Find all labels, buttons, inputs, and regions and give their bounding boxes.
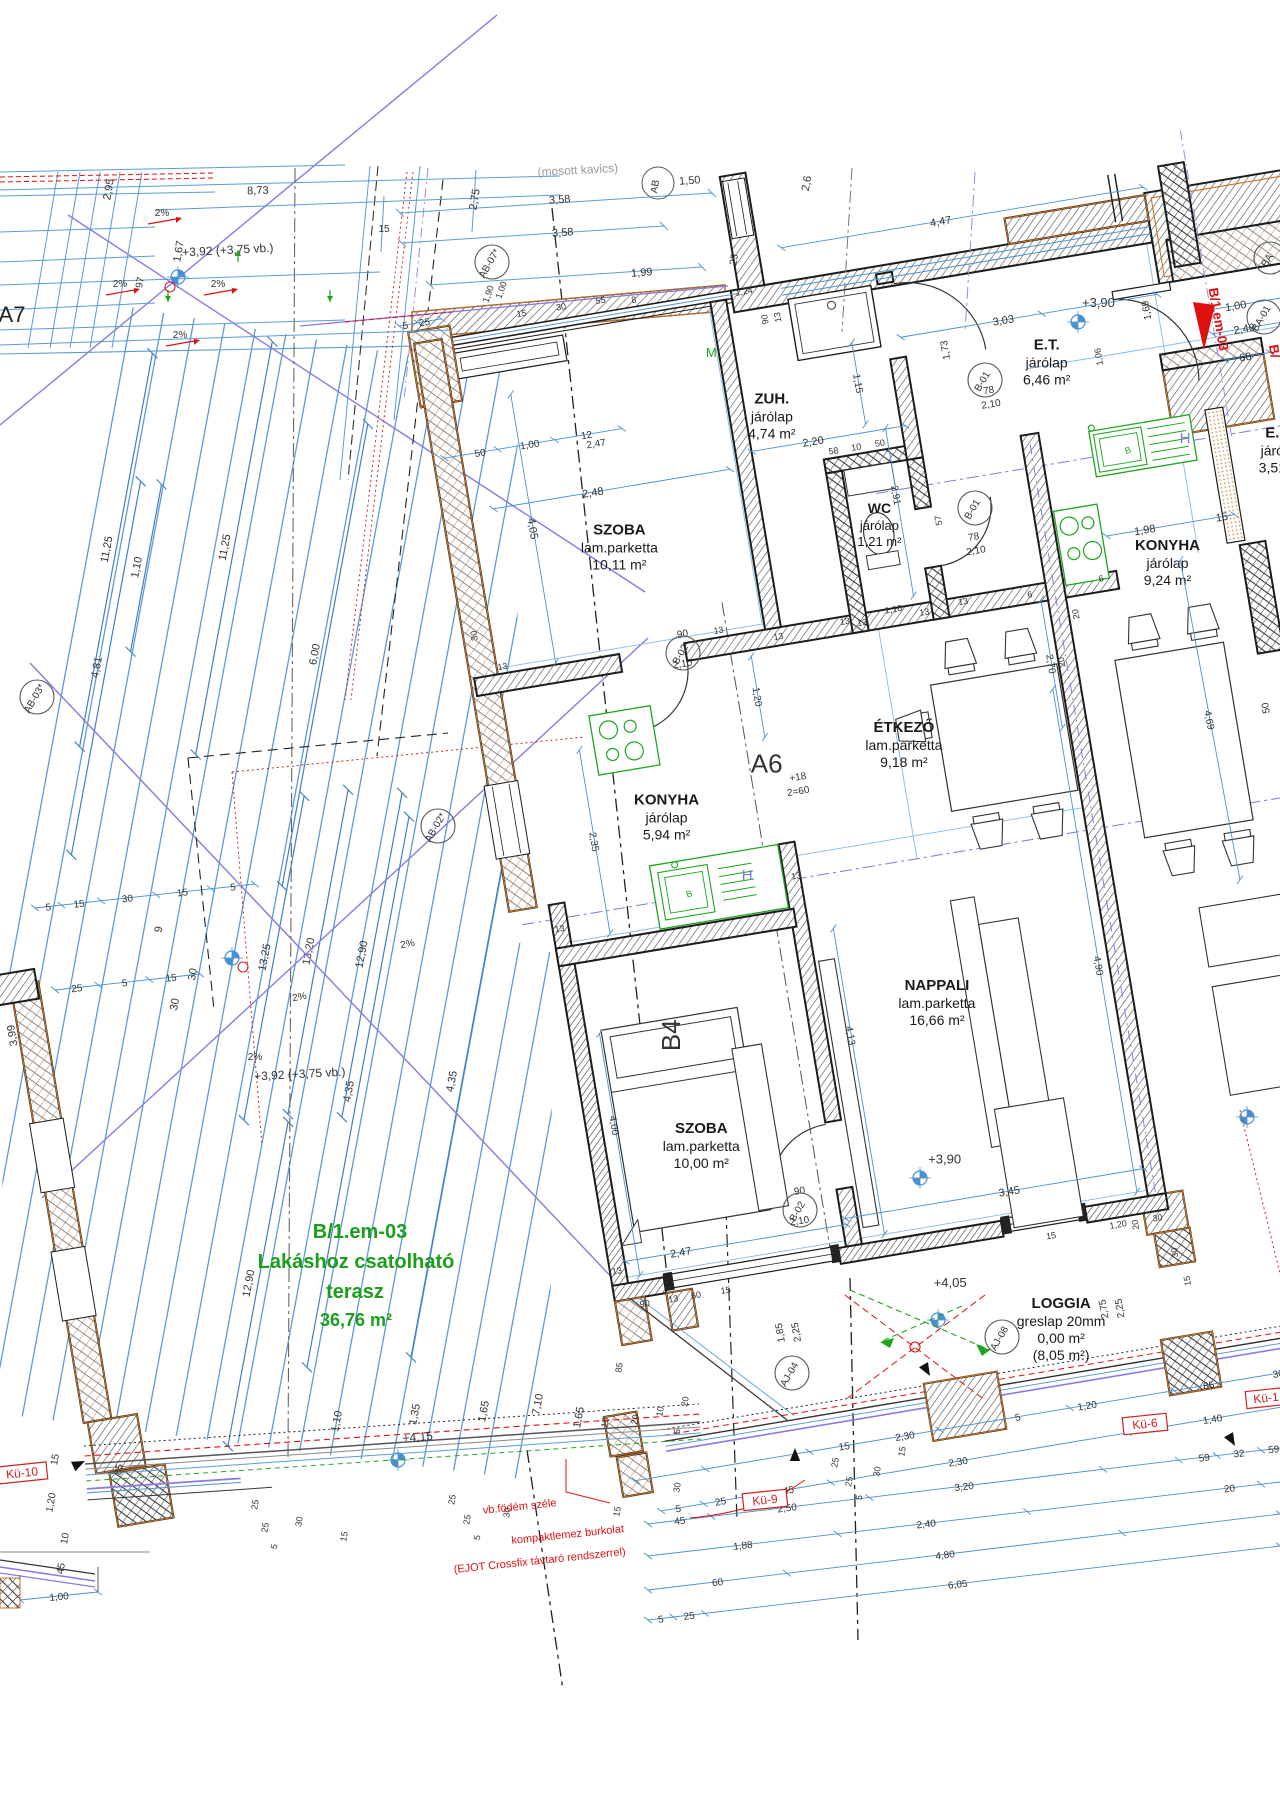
svg-text:H: H: [742, 867, 753, 884]
svg-text:15: 15: [1045, 1230, 1057, 1242]
svg-text:30: 30: [1272, 1368, 1280, 1381]
svg-text:59: 59: [1268, 1444, 1280, 1456]
svg-text:30: 30: [871, 1466, 883, 1478]
svg-text:6,05: 6,05: [948, 1579, 969, 1592]
svg-text:6,46 m²: 6,46 m²: [1023, 371, 1071, 387]
svg-text:60: 60: [690, 1289, 702, 1301]
svg-text:1,21 m²: 1,21 m²: [857, 534, 902, 549]
svg-text:50: 50: [474, 447, 487, 460]
svg-text:85: 85: [613, 1362, 625, 1374]
svg-text:50: 50: [874, 437, 886, 449]
svg-text:járólap: járólap: [750, 408, 793, 424]
svg-text:E.T.: E.T.: [1034, 336, 1060, 353]
svg-text:+4,15: +4,15: [402, 1429, 434, 1446]
svg-text:15: 15: [516, 308, 528, 320]
svg-text:WC: WC: [868, 500, 891, 516]
svg-text:+3,90: +3,90: [1082, 295, 1115, 310]
svg-text:1,99: 1,99: [631, 266, 653, 279]
svg-text:15: 15: [599, 1417, 611, 1429]
svg-text:30: 30: [1169, 1247, 1181, 1259]
svg-text:90: 90: [793, 1185, 806, 1198]
svg-text:15: 15: [838, 1441, 851, 1454]
svg-text:25: 25: [418, 317, 431, 330]
svg-text:20: 20: [629, 1414, 641, 1426]
svg-text:3,58: 3,58: [552, 226, 574, 239]
svg-text:50: 50: [1260, 701, 1273, 714]
svg-text:lam.parketta: lam.parketta: [581, 539, 658, 555]
svg-text:32: 32: [1233, 1448, 1246, 1460]
svg-text:25: 25: [683, 1611, 696, 1623]
svg-text:+3,90: +3,90: [928, 1151, 961, 1166]
svg-text:15: 15: [896, 1446, 908, 1458]
svg-text:B/1.em-03: B/1.em-03: [313, 1221, 408, 1243]
svg-text:10: 10: [654, 1406, 666, 1418]
svg-text:90: 90: [676, 628, 689, 641]
svg-text:57: 57: [933, 515, 945, 527]
svg-text:20: 20: [1130, 1219, 1142, 1231]
svg-text:25: 25: [829, 1457, 841, 1469]
svg-text:13: 13: [856, 617, 868, 629]
svg-text:Kü-1: Kü-1: [1253, 1390, 1280, 1407]
svg-text:A7: A7: [0, 302, 25, 327]
svg-text:90: 90: [639, 1298, 651, 1310]
svg-text:5,94 m²: 5,94 m²: [643, 826, 691, 842]
svg-text:15: 15: [176, 887, 189, 899]
svg-text:3,58: 3,58: [549, 193, 571, 206]
svg-text:E.: E.: [1265, 424, 1279, 441]
svg-text:13: 13: [772, 312, 784, 324]
svg-text:59: 59: [1198, 1452, 1211, 1464]
svg-text:járólap: járólap: [1025, 354, 1068, 370]
svg-text:járó: járó: [1260, 442, 1280, 458]
svg-text:8,73: 8,73: [247, 185, 269, 198]
svg-text:lam.parketta: lam.parketta: [865, 737, 942, 753]
svg-text:16,66 m²: 16,66 m²: [909, 1012, 965, 1028]
svg-text:AB: AB: [649, 179, 662, 194]
svg-text:25: 25: [71, 983, 84, 995]
svg-text:1,88: 1,88: [733, 1540, 754, 1553]
svg-text:60: 60: [712, 1577, 725, 1589]
svg-text:4,80: 4,80: [935, 1549, 956, 1562]
svg-text:15: 15: [1215, 511, 1229, 525]
svg-text:1,50: 1,50: [679, 174, 701, 187]
svg-text:ZUH.: ZUH.: [754, 390, 789, 407]
svg-text:58: 58: [828, 445, 840, 457]
svg-text:járólap: járólap: [859, 518, 899, 533]
svg-text:85: 85: [1202, 1380, 1215, 1393]
svg-text:30: 30: [671, 1482, 683, 1494]
svg-text:Kü-9: Kü-9: [752, 1492, 779, 1509]
svg-text:30: 30: [121, 893, 134, 905]
svg-text:SZOBA: SZOBA: [593, 521, 646, 538]
svg-text:10,00 m²: 10,00 m²: [674, 1155, 730, 1171]
svg-text:KONYHA: KONYHA: [1135, 537, 1200, 554]
svg-text:járólap: járólap: [645, 809, 688, 825]
svg-text:lam.parketta: lam.parketta: [663, 1138, 740, 1154]
svg-text:10: 10: [850, 441, 862, 453]
svg-text:2%: 2%: [113, 279, 128, 290]
svg-text:1,00: 1,00: [49, 1591, 70, 1604]
svg-text:Lakáshoz csatolható: Lakáshoz csatolható: [258, 1251, 455, 1273]
svg-text:25: 25: [446, 1494, 458, 1506]
svg-text:13: 13: [554, 923, 566, 935]
svg-text:13: 13: [839, 616, 851, 628]
svg-text:H: H: [1180, 430, 1191, 447]
svg-text:15: 15: [378, 224, 390, 235]
svg-text:13: 13: [957, 596, 969, 608]
svg-text:25: 25: [714, 1496, 727, 1509]
svg-text:13: 13: [773, 631, 785, 643]
svg-text:terasz: terasz: [326, 1281, 384, 1303]
svg-text:25: 25: [461, 1514, 473, 1526]
svg-text:30: 30: [293, 1516, 305, 1528]
svg-text:Kü-6: Kü-6: [1132, 1416, 1159, 1433]
svg-text:B4: B4: [656, 1019, 686, 1051]
svg-text:25: 25: [259, 1522, 271, 1534]
svg-text:9,18 m²: 9,18 m²: [880, 754, 928, 770]
svg-text:KONYHA: KONYHA: [634, 791, 699, 808]
svg-text:13: 13: [713, 625, 725, 637]
svg-text:2,40: 2,40: [916, 1518, 937, 1531]
svg-text:+4,05: +4,05: [934, 1275, 967, 1290]
svg-text:SZOBA: SZOBA: [675, 1120, 728, 1137]
svg-text:2%: 2%: [248, 1052, 263, 1063]
svg-text:20: 20: [1056, 656, 1068, 668]
svg-text:2%: 2%: [155, 208, 170, 219]
svg-text:M: M: [706, 345, 717, 360]
svg-text:20: 20: [679, 1396, 691, 1408]
svg-text:30: 30: [468, 630, 480, 642]
svg-text:(8,05 m²): (8,05 m²): [1033, 1347, 1090, 1363]
svg-text:15: 15: [1182, 1275, 1194, 1287]
svg-text:ÉTKEZŐ: ÉTKEZŐ: [873, 718, 934, 736]
svg-text:2%: 2%: [211, 279, 226, 290]
svg-text:10,11 m²: 10,11 m²: [592, 556, 647, 572]
svg-text:lam.parketta: lam.parketta: [898, 995, 975, 1011]
svg-text:A6: A6: [751, 748, 783, 778]
svg-text:0,00 m²: 0,00 m²: [1037, 1330, 1085, 1346]
svg-text:30: 30: [168, 997, 182, 1011]
svg-text:13: 13: [611, 1265, 623, 1277]
svg-text:15: 15: [611, 1506, 623, 1518]
svg-text:25: 25: [249, 1499, 261, 1511]
svg-text:4,74 m²: 4,74 m²: [748, 425, 796, 441]
svg-text:LOGGIA: LOGGIA: [1032, 1295, 1091, 1312]
svg-text:60: 60: [1238, 351, 1252, 365]
svg-text:B/: B/: [1266, 343, 1280, 359]
svg-text:15: 15: [720, 1284, 732, 1296]
svg-text:25: 25: [843, 1476, 855, 1488]
svg-text:2%: 2%: [173, 330, 188, 341]
svg-text:3,51: 3,51: [1259, 459, 1280, 475]
svg-text:15: 15: [338, 1531, 350, 1543]
svg-text:15: 15: [165, 973, 178, 985]
svg-text:55: 55: [595, 295, 607, 307]
svg-text:45: 45: [674, 1516, 687, 1528]
svg-text:36,76 m²: 36,76 m²: [320, 1310, 392, 1330]
svg-text:greslap 20mm: greslap 20mm: [1017, 1313, 1106, 1329]
svg-text:13: 13: [919, 606, 931, 618]
svg-text:13: 13: [790, 870, 802, 882]
svg-text:30: 30: [555, 301, 567, 313]
svg-text:15: 15: [73, 899, 86, 911]
svg-text:20: 20: [1070, 608, 1082, 620]
svg-text:20: 20: [1223, 1483, 1236, 1495]
svg-text:78: 78: [967, 531, 980, 544]
svg-text:90: 90: [759, 314, 771, 326]
svg-text:13: 13: [668, 1293, 680, 1305]
svg-text:30: 30: [1152, 1212, 1164, 1224]
svg-text:13: 13: [497, 661, 509, 673]
svg-text:NAPPALI: NAPPALI: [905, 977, 970, 994]
